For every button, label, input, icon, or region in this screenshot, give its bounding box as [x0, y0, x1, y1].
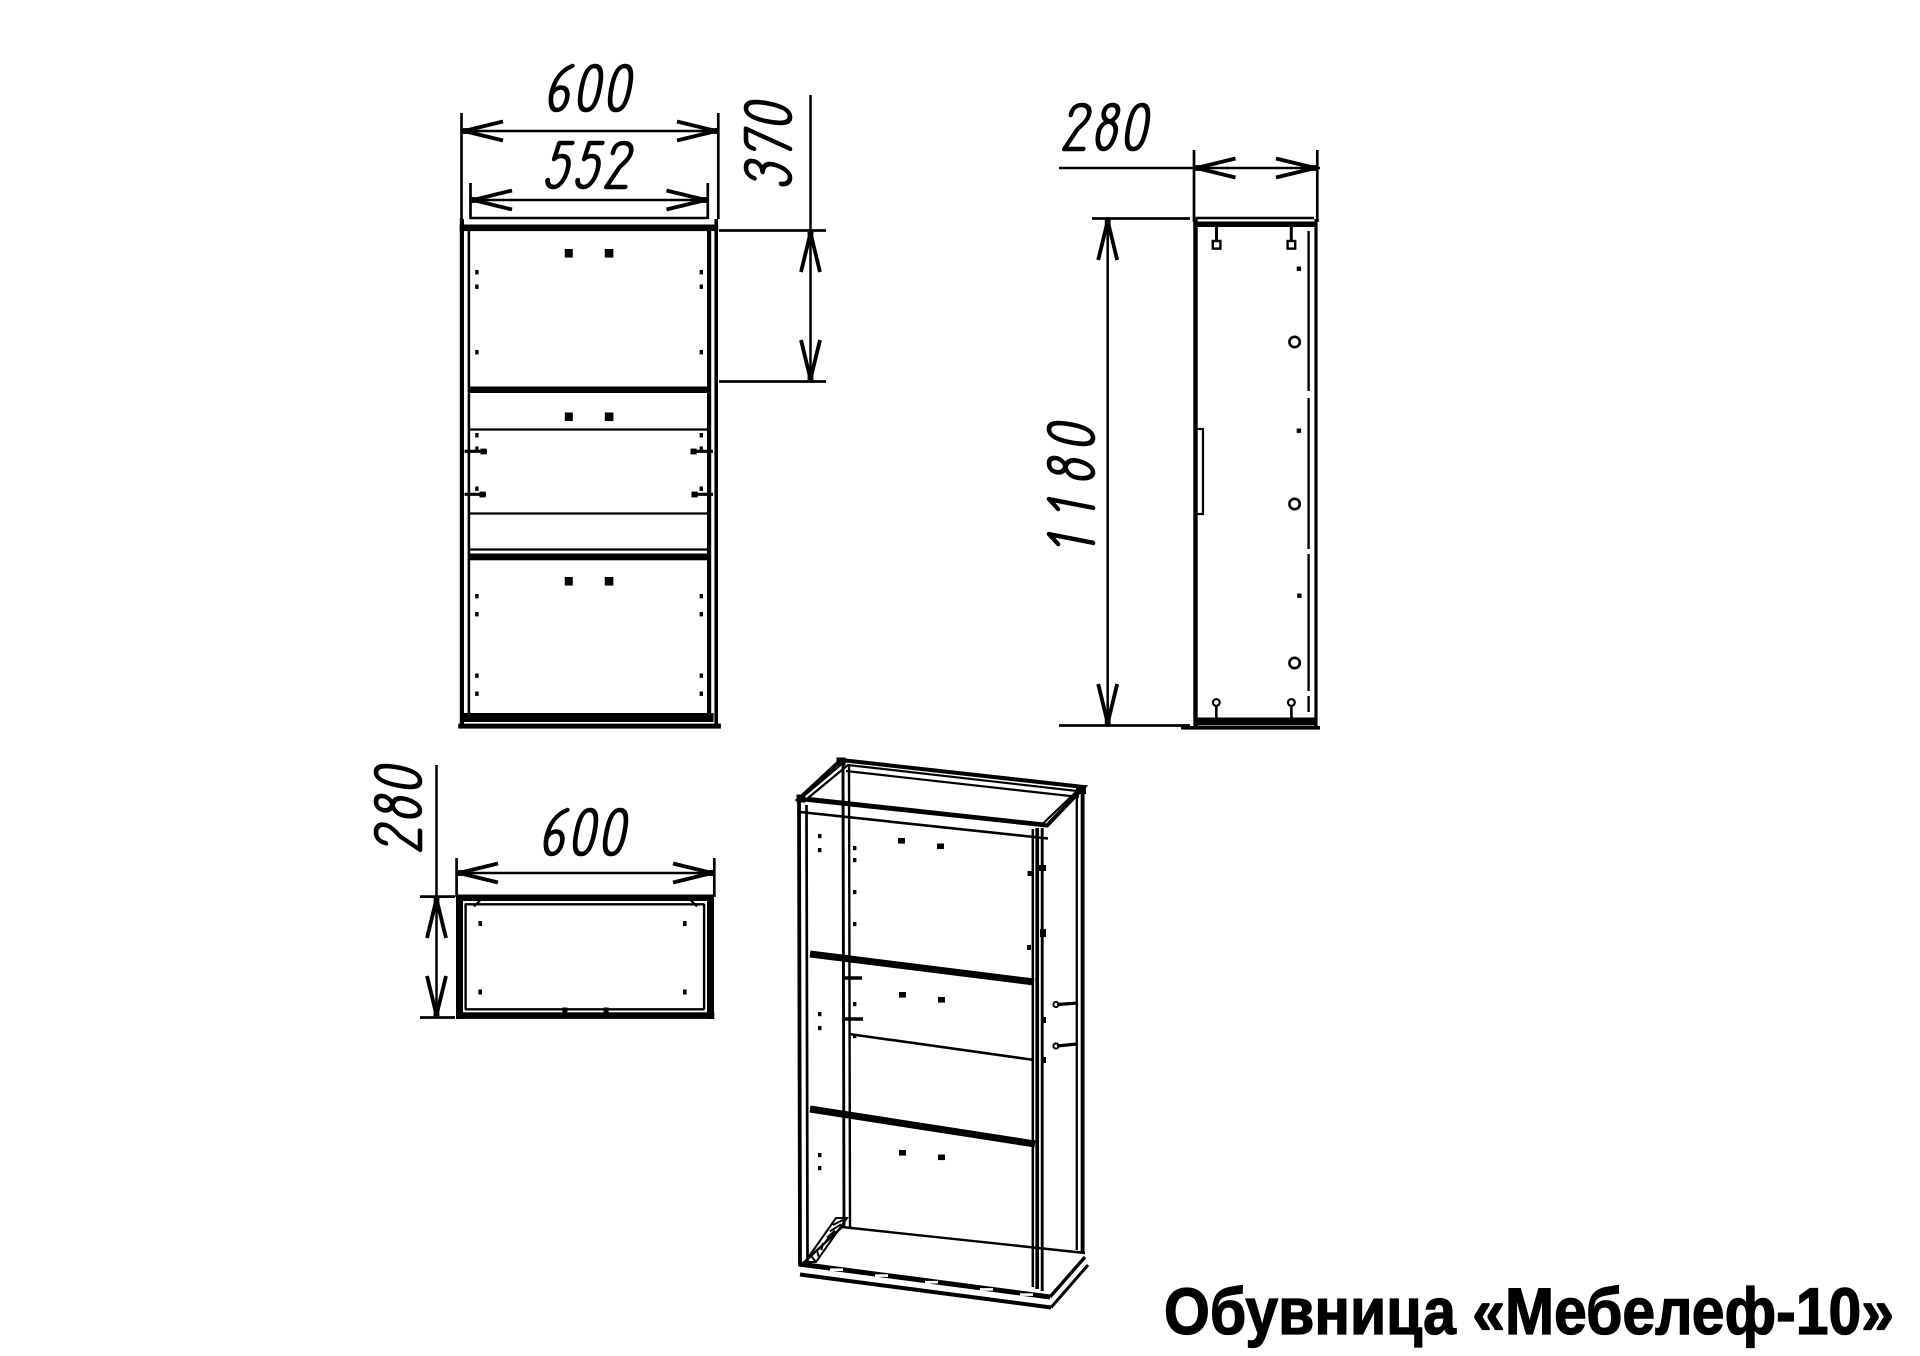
svg-text:Обувница «Мебелеф-10»: Обувница «Мебелеф-10»	[1164, 1274, 1894, 1348]
